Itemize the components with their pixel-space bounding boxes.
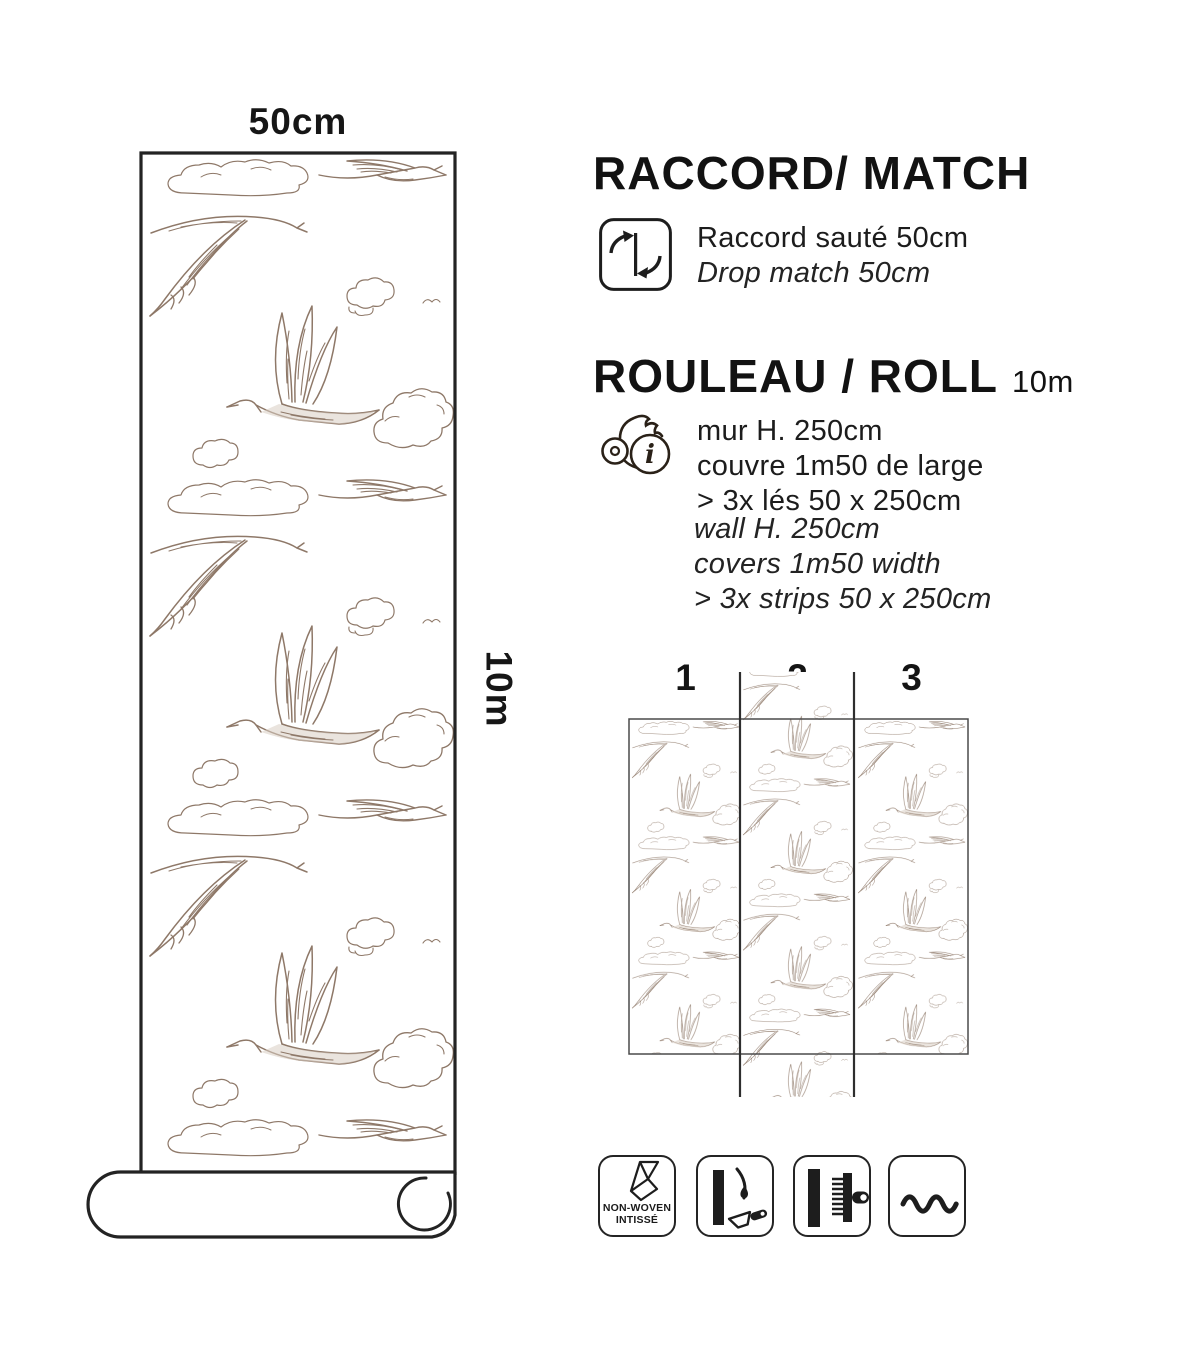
roll-info-icon: i bbox=[598, 410, 680, 485]
info-glyph: i bbox=[645, 440, 655, 470]
wave-icon bbox=[890, 1157, 968, 1239]
strip-layout-diagram bbox=[622, 662, 978, 1117]
roll-specs-en: wall H. 250cm covers 1m50 width > 3x str… bbox=[694, 512, 992, 617]
roll-en-line: wall H. 250cm bbox=[694, 512, 992, 547]
feature-icon-non-woven: NON-WOVEN INTISSÉ bbox=[598, 1155, 676, 1237]
feature-icon-smoothing-tool bbox=[793, 1155, 871, 1237]
roll-length-badge: 10m bbox=[1012, 364, 1074, 399]
match-line-fr: Raccord sauté 50cm bbox=[697, 221, 968, 256]
roll-section-title: ROULEAU / ROLL10m bbox=[593, 349, 1074, 403]
roll-fr-line: couvre 1m50 de large bbox=[697, 449, 984, 484]
wallpaper-strip-pattern bbox=[141, 153, 455, 1231]
roll-length-label: 10m bbox=[478, 650, 520, 727]
feature-icon-washable bbox=[888, 1155, 966, 1237]
roll-en-line: > 3x strips 50 x 250cm bbox=[694, 582, 992, 617]
rolled-cylinder bbox=[88, 1172, 455, 1237]
match-description: Raccord sauté 50cm Drop match 50cm bbox=[697, 221, 968, 291]
roll-title-text: ROULEAU / ROLL bbox=[593, 350, 998, 402]
strip-2-pattern bbox=[740, 672, 854, 1097]
roll-en-line: covers 1m50 width bbox=[694, 547, 992, 582]
drop-match-icon bbox=[599, 218, 672, 296]
roll-fr-line: mur H. 250cm bbox=[697, 414, 984, 449]
paste-brush-icon bbox=[698, 1157, 776, 1239]
wallpaper-roll-illustration bbox=[80, 145, 500, 1260]
spatula-icon bbox=[795, 1157, 873, 1239]
product-sheet: 50cm 10m RACCORD/ MATCH Raccord sauté 50… bbox=[0, 0, 1200, 1353]
roll-specs-fr: mur H. 250cm couvre 1m50 de large > 3x l… bbox=[697, 414, 984, 519]
non-woven-icon bbox=[600, 1157, 678, 1203]
match-section-title: RACCORD/ MATCH bbox=[593, 146, 1030, 200]
match-line-en: Drop match 50cm bbox=[697, 256, 968, 291]
non-woven-label: NON-WOVEN INTISSÉ bbox=[600, 1202, 674, 1226]
roll-width-label: 50cm bbox=[141, 101, 455, 143]
feature-icon-paste-the-wall bbox=[696, 1155, 774, 1237]
